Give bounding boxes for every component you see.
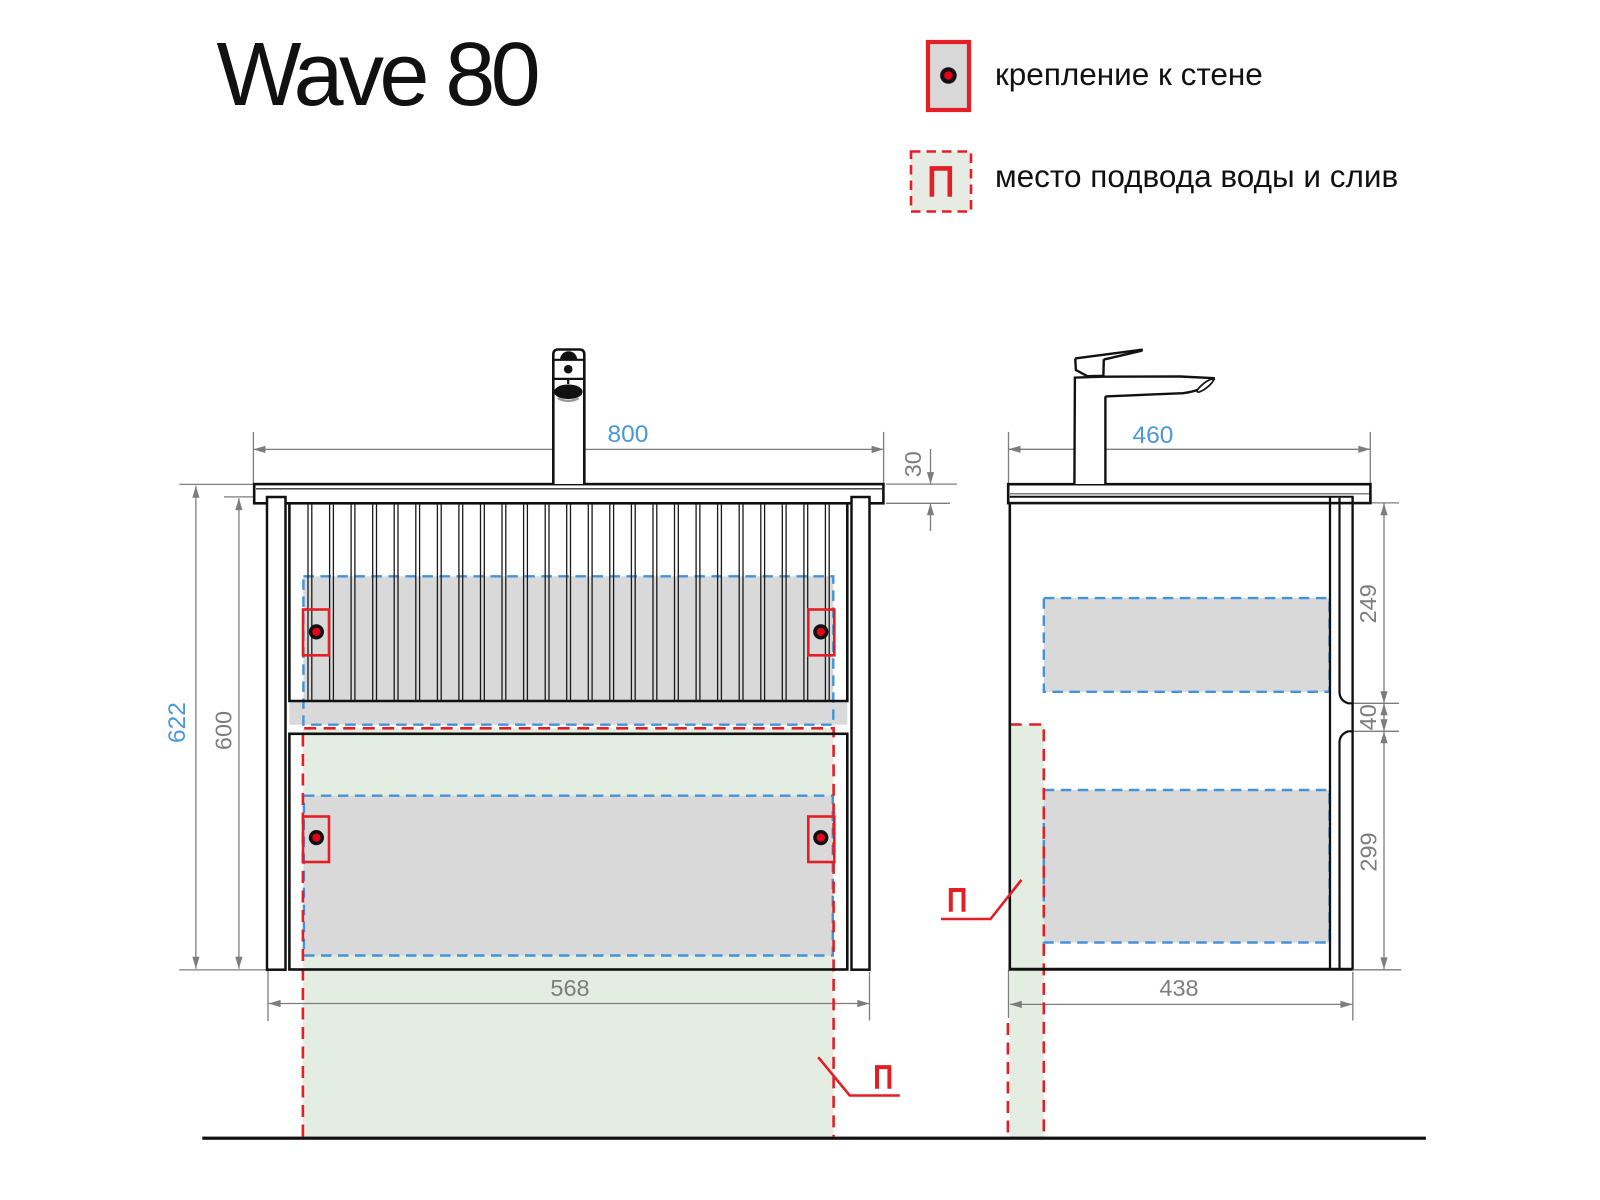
svg-text:40: 40	[1355, 704, 1381, 730]
svg-text:299: 299	[1356, 832, 1382, 871]
svg-text:800: 800	[608, 421, 649, 448]
svg-text:460: 460	[1133, 422, 1174, 449]
svg-text:30: 30	[900, 451, 926, 477]
svg-text:Wave 80: Wave 80	[217, 25, 538, 125]
svg-text:600: 600	[211, 711, 237, 750]
svg-text:место подвода воды и слив: место подвода воды и слив	[995, 158, 1398, 194]
svg-text:622: 622	[164, 702, 191, 743]
svg-text:крепление к стене: крепление к стене	[995, 56, 1263, 92]
svg-text:249: 249	[1355, 584, 1381, 623]
svg-text:568: 568	[550, 975, 589, 1001]
svg-text:438: 438	[1159, 975, 1198, 1001]
